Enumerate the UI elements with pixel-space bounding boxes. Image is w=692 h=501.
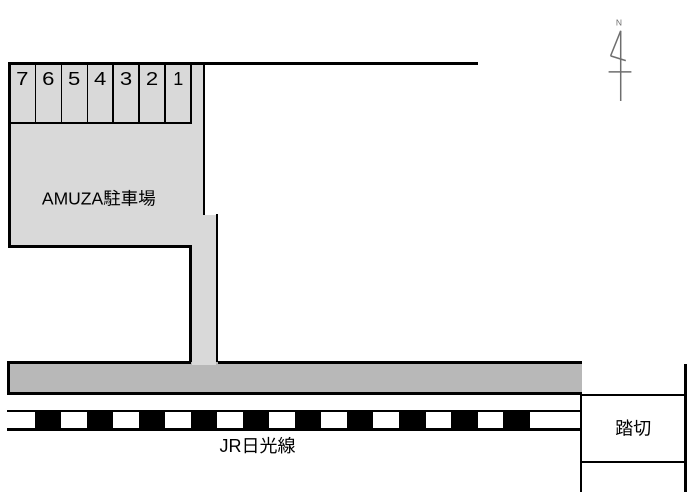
svg-text:JR: JR <box>220 436 242 456</box>
svg-text:N: N <box>616 17 622 27</box>
svg-text:2: 2 <box>146 69 158 89</box>
svg-text:4: 4 <box>94 69 106 89</box>
svg-text:5: 5 <box>68 69 80 89</box>
svg-text:AMUZA: AMUZA <box>42 189 104 209</box>
svg-text:1: 1 <box>173 69 183 89</box>
svg-text:3: 3 <box>120 69 132 89</box>
svg-text:6: 6 <box>42 69 54 89</box>
svg-text:7: 7 <box>16 69 28 89</box>
